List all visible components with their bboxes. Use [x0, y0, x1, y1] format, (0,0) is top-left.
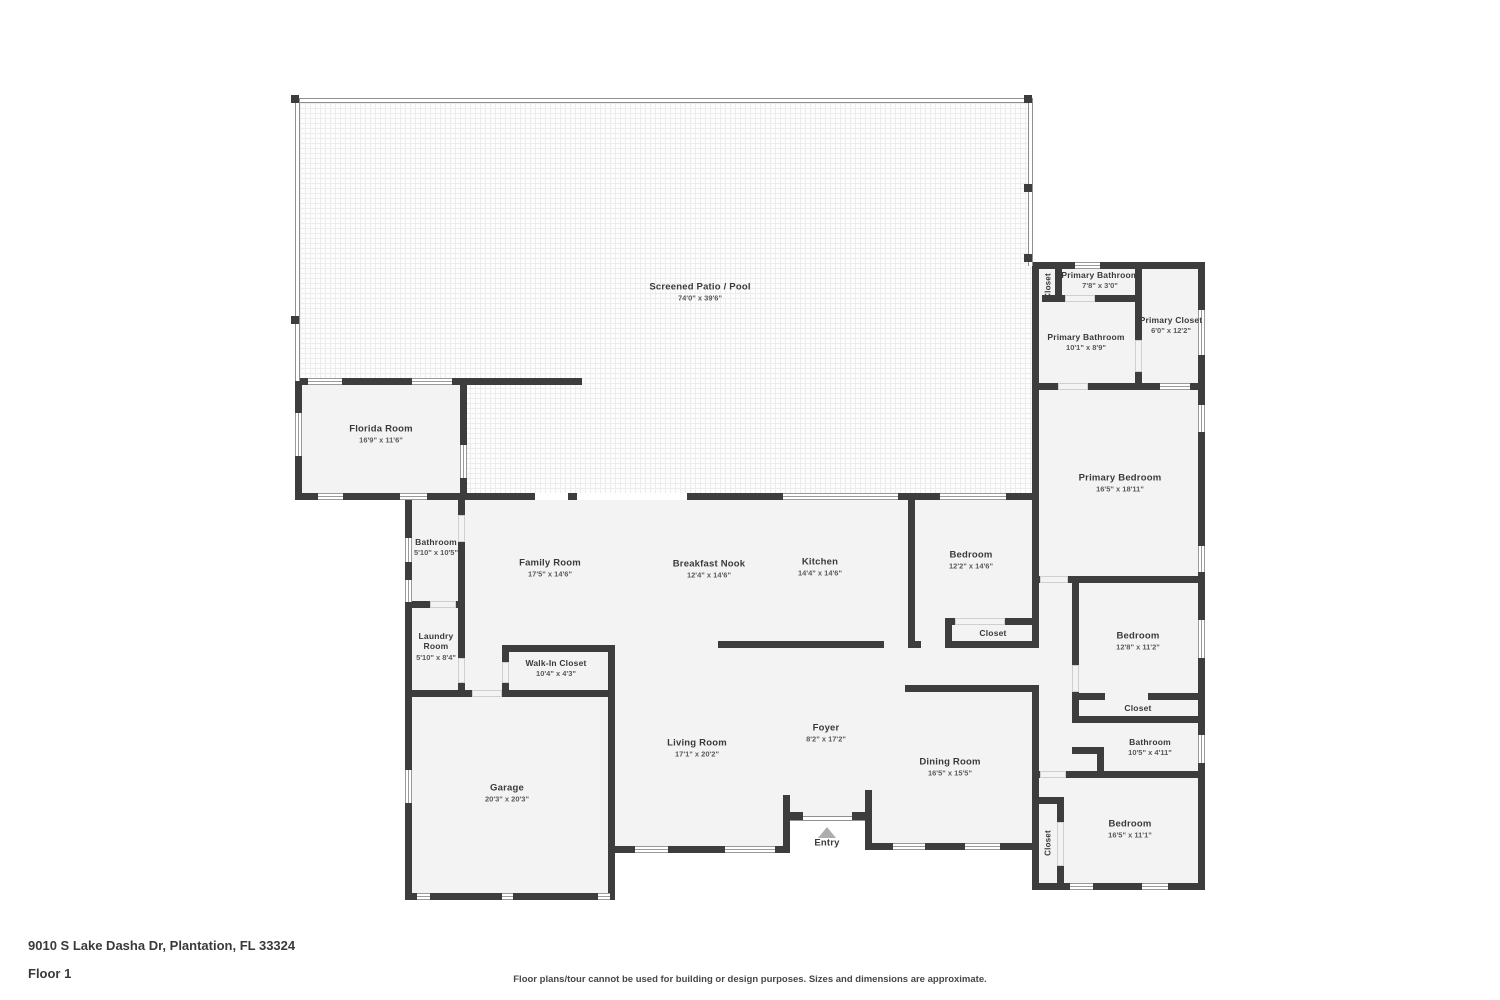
wall-post	[291, 95, 299, 103]
door-opening	[1057, 822, 1064, 866]
window	[940, 493, 1006, 500]
door-opening	[1135, 340, 1142, 372]
room-label-screened-patio-pool: Screened Patio / Pool 74'0" x 39'6"	[649, 282, 750, 303]
disclaimer-text: Floor plans/tour cannot be used for buil…	[0, 974, 1500, 985]
door-opening	[1065, 295, 1095, 302]
window	[405, 538, 412, 562]
door-opening	[502, 662, 509, 683]
window	[598, 893, 610, 900]
room-label-primary-bathroom: Primary Bathroom 10'1" x 8'9"	[1047, 332, 1124, 352]
room-label-kitchen: Kitchen 14'4" x 14'6"	[798, 557, 842, 578]
wall-post	[1024, 95, 1032, 103]
room-label-entry: Entry	[814, 838, 839, 849]
wall-post	[790, 812, 803, 820]
door-opening	[1040, 576, 1068, 583]
window	[783, 493, 898, 500]
wall	[783, 795, 790, 853]
door-opening	[458, 515, 465, 542]
room-label-living-room: Living Room 17'1" x 20'2"	[667, 738, 727, 759]
door-opening	[1072, 665, 1079, 692]
room-label-primary-bedroom: Primary Bedroom 16'5" x 18'11"	[1079, 473, 1162, 494]
room-label-walk-in-closet: Walk-In Closet 10'4" x 4'3"	[525, 658, 586, 678]
hall-opening	[1032, 648, 1039, 685]
window	[460, 445, 467, 478]
wall	[460, 378, 467, 500]
window	[405, 580, 412, 602]
door-opening	[1058, 383, 1088, 390]
room-label-closet-top: Closet	[1044, 273, 1053, 299]
floor-plan-page: Screened Patio / Pool 74'0" x 39'6" Flor…	[0, 0, 1500, 1000]
window	[502, 893, 513, 900]
wall	[1148, 693, 1205, 700]
window	[965, 843, 1000, 850]
door-opening	[472, 690, 502, 697]
room-label-breakfast-nook: Breakfast Nook 12'4" x 14'6"	[673, 559, 746, 580]
window	[318, 493, 343, 500]
address-title: 9010 S Lake Dasha Dr, Plantation, FL 333…	[28, 938, 295, 953]
room-label-foyer: Foyer 8'2" x 17'2"	[806, 723, 846, 744]
room-floor	[405, 648, 615, 900]
window	[308, 378, 342, 385]
window	[635, 846, 668, 853]
door-opening	[1040, 771, 1066, 778]
window	[1198, 620, 1205, 658]
wall	[905, 685, 1039, 692]
room-label-family-room: Family Room 17'5" x 14'6"	[519, 558, 581, 579]
room-label-laundry-room: Laundry Room 5'10" x 8'4"	[410, 632, 462, 662]
wall-post	[1024, 254, 1032, 262]
room-label-dining-room: Dining Room 16'5" x 15'5"	[919, 757, 980, 778]
patio-screen-wall	[1028, 98, 1033, 266]
window	[417, 893, 430, 900]
patio-screen-wall	[295, 98, 300, 381]
window	[1198, 735, 1205, 763]
room-label-primary-bathroom-small: Primary Bathroom 7'8" x 3'0"	[1061, 270, 1138, 290]
patio-opening	[577, 493, 687, 500]
room-label-bedroom-3: Bedroom 16'5" x 11'1"	[1108, 819, 1152, 840]
door-opening	[955, 618, 1005, 625]
patio-opening	[535, 493, 568, 500]
wall	[945, 641, 1032, 648]
wall	[865, 790, 872, 846]
window	[295, 413, 302, 456]
room-label-bedroom-1: Bedroom 12'2" x 14'6"	[949, 550, 993, 571]
room-label-closet-2: Closet	[1124, 703, 1151, 713]
room-label-closet-1: Closet	[979, 628, 1006, 638]
wall	[1072, 576, 1079, 723]
wall	[718, 641, 884, 648]
wall	[405, 690, 615, 697]
window	[1198, 546, 1205, 572]
window	[1142, 883, 1168, 890]
room-label-primary-closet: Primary Closet 6'0" x 12'2"	[1140, 315, 1203, 335]
wall	[865, 843, 1039, 850]
window	[725, 846, 775, 853]
room-label-bathroom-2: Bathroom 10'5" x 4'11"	[1128, 737, 1172, 757]
wall-post	[291, 316, 299, 324]
window	[412, 378, 452, 385]
window	[405, 770, 412, 803]
entry-direction-icon	[818, 827, 836, 838]
wall	[908, 493, 915, 648]
room-floor	[865, 648, 1039, 850]
window	[893, 843, 925, 850]
wall	[1072, 693, 1105, 700]
window	[1160, 383, 1190, 390]
wall-post	[1024, 184, 1032, 192]
wall-post	[852, 812, 865, 820]
room-label-florida-room: Florida Room 16'9" x 11'6"	[349, 424, 413, 445]
room-label-bedroom-2: Bedroom 12'8" x 11'2"	[1116, 631, 1160, 652]
wall	[1032, 883, 1205, 890]
window	[400, 493, 427, 500]
window	[1075, 262, 1100, 269]
wall	[608, 645, 615, 900]
window	[1198, 405, 1205, 432]
wall	[1072, 716, 1205, 723]
window	[1070, 883, 1093, 890]
room-label-bathroom-main: Bathroom 5'10" x 10'5"	[414, 537, 458, 557]
wall	[502, 645, 615, 652]
room-label-garage: Garage 20'3" x 20'3"	[485, 783, 529, 804]
patio-screen-wall	[295, 98, 1032, 103]
room-label-closet-3: Closet	[1044, 830, 1053, 856]
door-opening	[430, 601, 456, 608]
